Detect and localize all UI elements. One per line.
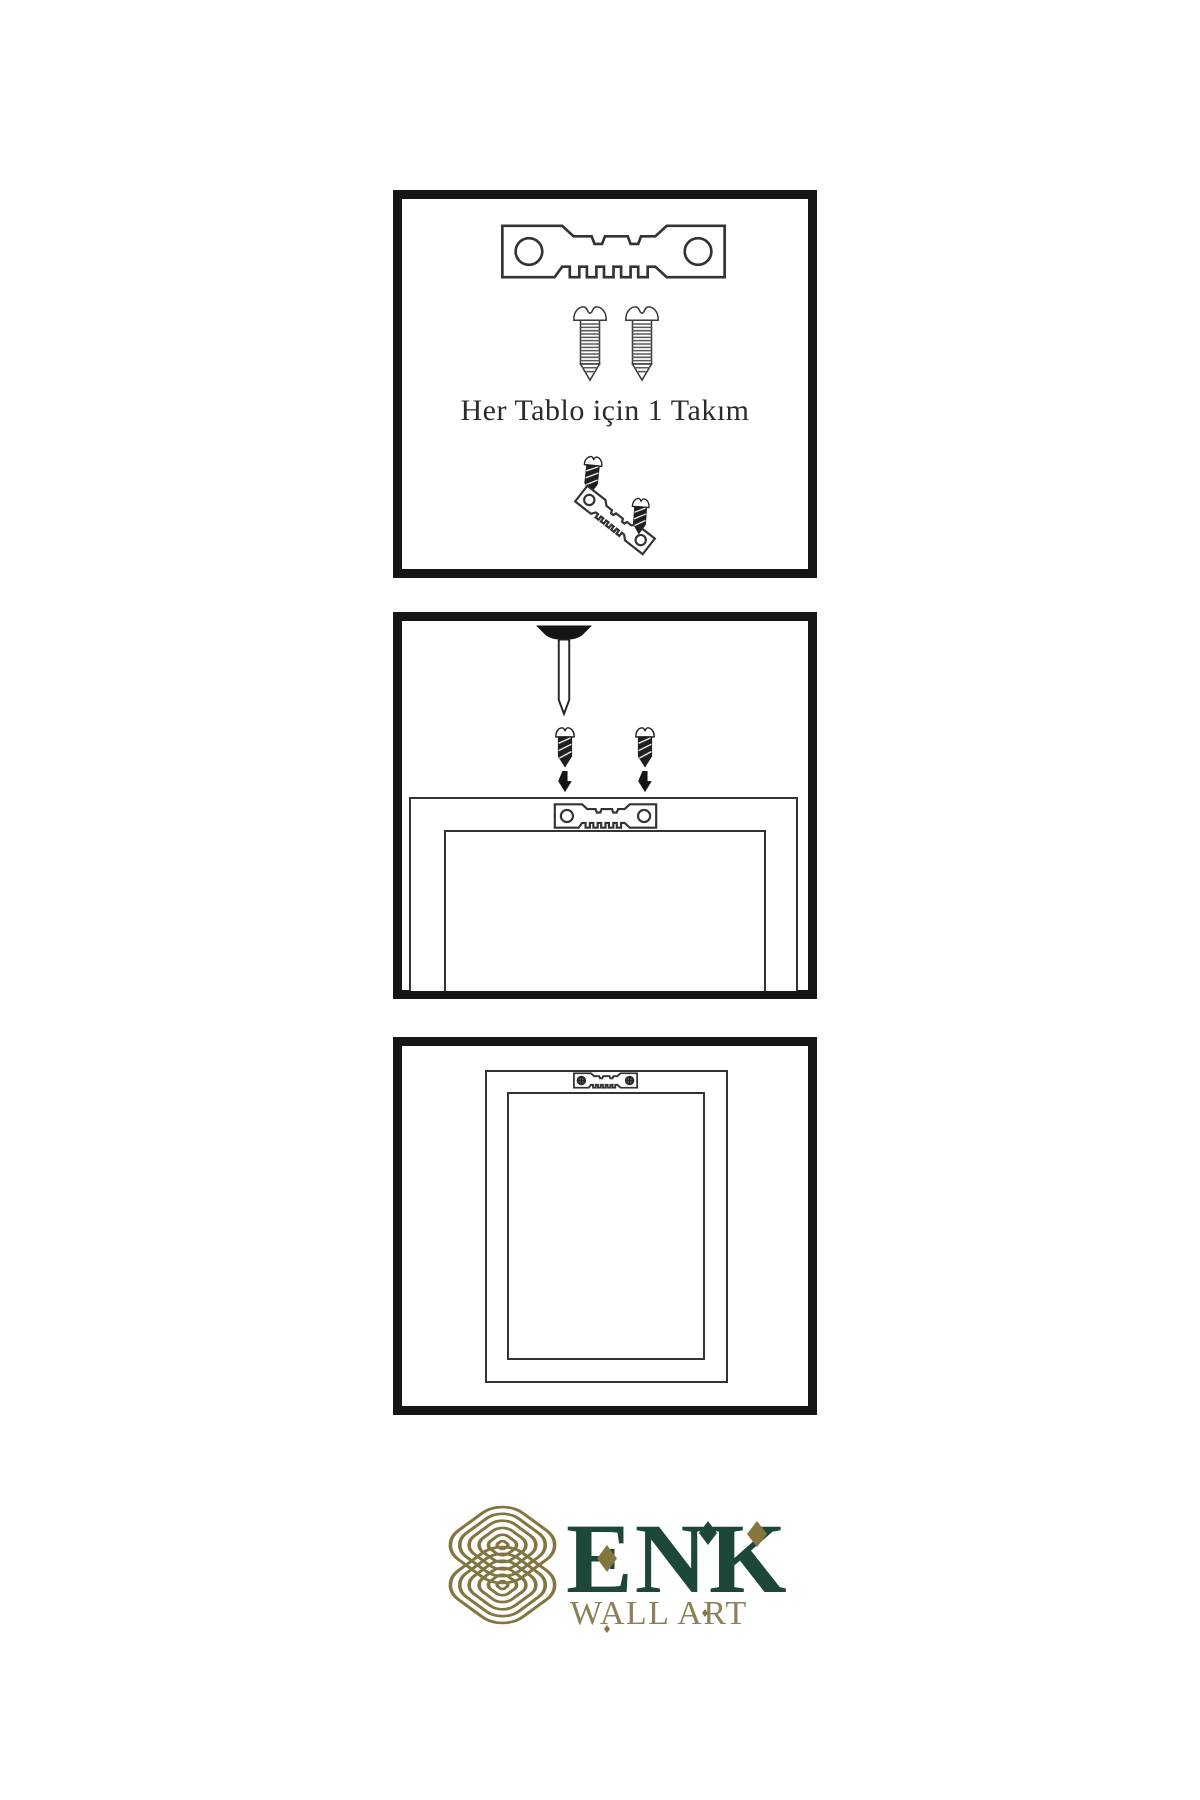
step1-caption: Her Tablo için 1 Takım (402, 396, 808, 426)
mounted-sawtooth-hanger-icon (573, 1072, 638, 1089)
sawtooth-hanger-icon (497, 223, 730, 280)
hanging-instructions-image: Her Tablo için 1 Takım (0, 0, 1200, 1800)
sawtooth-hanger-icon (553, 803, 658, 829)
brand-tagline: WALL ART (570, 1597, 748, 1631)
screw-icon (622, 305, 662, 383)
step-panel-1: Her Tablo için 1 Takım (393, 190, 817, 578)
knot-lower-loop (438, 1538, 566, 1631)
step-panel-3 (393, 1037, 817, 1415)
step-panel-2 (393, 612, 817, 999)
dark-screw-icon (628, 496, 653, 535)
knot-logo-icon (438, 1498, 567, 1632)
arrow-down-icon (556, 771, 574, 793)
dark-screw-icon (554, 726, 576, 768)
dark-screw-icon (634, 726, 656, 768)
frame-back-inner-outline (444, 830, 766, 991)
knot-upper-loop (438, 1498, 566, 1591)
screw-icon (570, 305, 610, 383)
arrow-down-icon (636, 771, 654, 793)
nail-icon (536, 621, 592, 721)
canvas-frame-inner-outline (507, 1092, 705, 1360)
